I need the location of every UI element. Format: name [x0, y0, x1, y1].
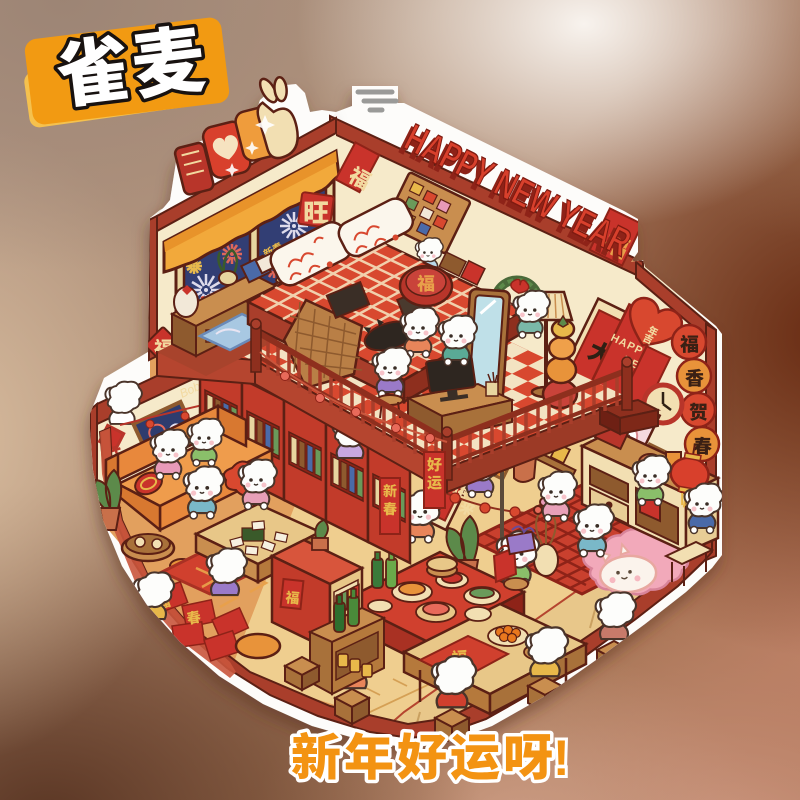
svg-text:!: !: [553, 730, 570, 786]
